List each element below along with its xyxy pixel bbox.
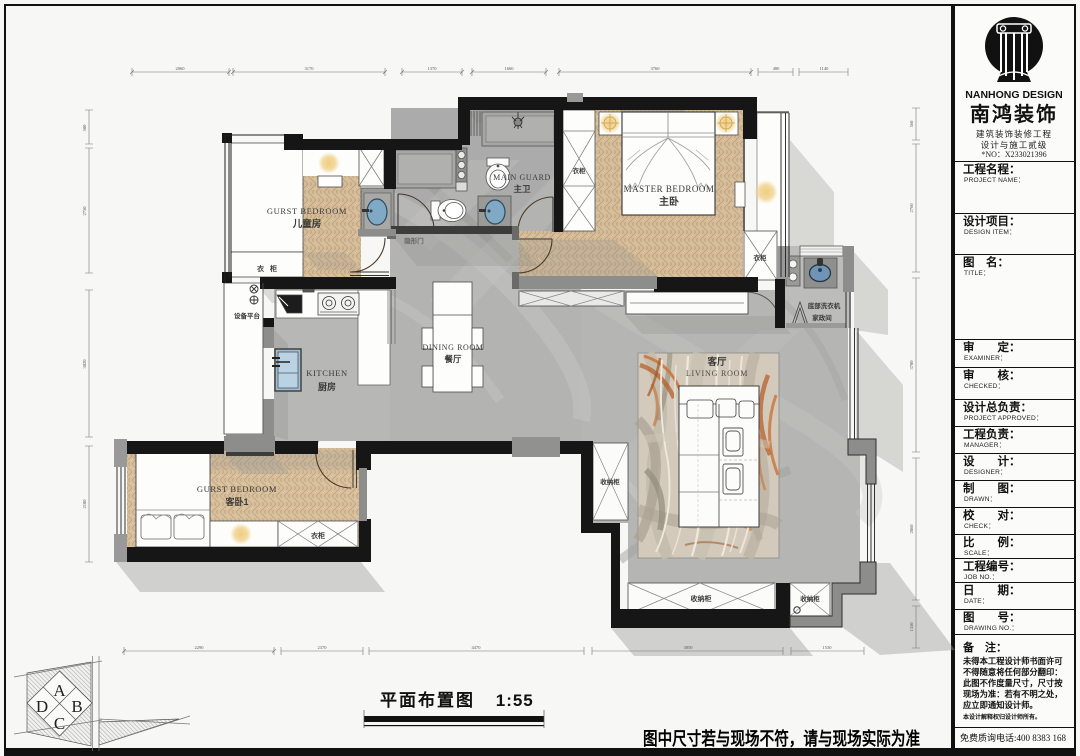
svg-text:2060: 2060: [176, 66, 186, 71]
svg-text:DINING ROOM: DINING ROOM: [422, 343, 483, 352]
svg-text:1530: 1530: [823, 645, 833, 650]
svg-text:建筑装饰装修工程: 建筑装饰装修工程: [976, 129, 1052, 139]
svg-text:3760: 3760: [651, 66, 661, 71]
svg-text:3700: 3700: [909, 360, 914, 370]
svg-text:儿童房: 儿童房: [292, 218, 322, 230]
svg-text:560: 560: [909, 120, 914, 128]
svg-text:A: A: [53, 681, 66, 700]
svg-text:580: 580: [82, 124, 87, 132]
svg-text:2860: 2860: [909, 524, 914, 534]
svg-text:MASTER BEDROOM: MASTER BEDROOM: [624, 184, 715, 194]
svg-text:4470: 4470: [472, 645, 482, 650]
svg-text:1140: 1140: [820, 66, 830, 71]
svg-text:衣 柜: 衣 柜: [257, 264, 279, 273]
svg-text:GURST BEDROOM: GURST BEDROOM: [197, 484, 277, 494]
svg-text:C: C: [54, 714, 65, 733]
svg-text:2180: 2180: [82, 499, 87, 509]
svg-text:厨房: 厨房: [318, 381, 336, 392]
svg-text:2760: 2760: [909, 203, 914, 213]
svg-text:D: D: [36, 697, 48, 716]
svg-text:收纳柜: 收纳柜: [691, 594, 712, 603]
svg-text:2750: 2750: [82, 206, 87, 216]
svg-text:收纳柜: 收纳柜: [800, 594, 820, 603]
svg-text:2370: 2370: [318, 645, 328, 650]
svg-text:主卧: 主卧: [659, 195, 679, 208]
svg-text:3170: 3170: [305, 66, 315, 71]
svg-text:隐形门: 隐形门: [404, 236, 424, 245]
svg-text:设计与施工贰级: 设计与施工贰级: [981, 140, 1048, 150]
svg-text:1350: 1350: [909, 622, 914, 632]
svg-text:3850: 3850: [684, 645, 694, 650]
svg-text:南鸿装饰: 南鸿装饰: [970, 102, 1058, 126]
svg-text:衣柜: 衣柜: [573, 166, 587, 175]
svg-text:餐厅: 餐厅: [443, 354, 462, 364]
svg-text:1660: 1660: [505, 66, 515, 71]
svg-text:收纳柜: 收纳柜: [600, 477, 620, 486]
svg-text:*NO：X233021396: *NO：X233021396: [981, 150, 1046, 158]
svg-text:主卫: 主卫: [513, 184, 531, 194]
svg-text:底部洗衣机: 底部洗衣机: [808, 301, 841, 310]
svg-text:KITCHEN: KITCHEN: [306, 368, 348, 378]
svg-text:设备平台: 设备平台: [234, 311, 261, 320]
svg-text:衣柜: 衣柜: [754, 253, 768, 262]
svg-text:MAIN GUARD: MAIN GUARD: [493, 173, 551, 182]
svg-text:客厅: 客厅: [706, 356, 727, 368]
svg-text:GURST BEDROOM: GURST BEDROOM: [267, 206, 347, 216]
svg-text:B: B: [71, 697, 82, 716]
svg-text:NANHONG DESIGN: NANHONG DESIGN: [965, 89, 1062, 101]
svg-text:客卧1: 客卧1: [224, 496, 248, 507]
svg-text:3020: 3020: [82, 359, 87, 369]
svg-text:LIVING ROOM: LIVING ROOM: [686, 369, 748, 378]
svg-text:2290: 2290: [195, 645, 205, 650]
svg-text:480: 480: [773, 66, 781, 71]
svg-text:衣柜: 衣柜: [311, 531, 325, 540]
svg-text:1370: 1370: [428, 66, 438, 71]
svg-text:家政间: 家政间: [812, 313, 832, 322]
